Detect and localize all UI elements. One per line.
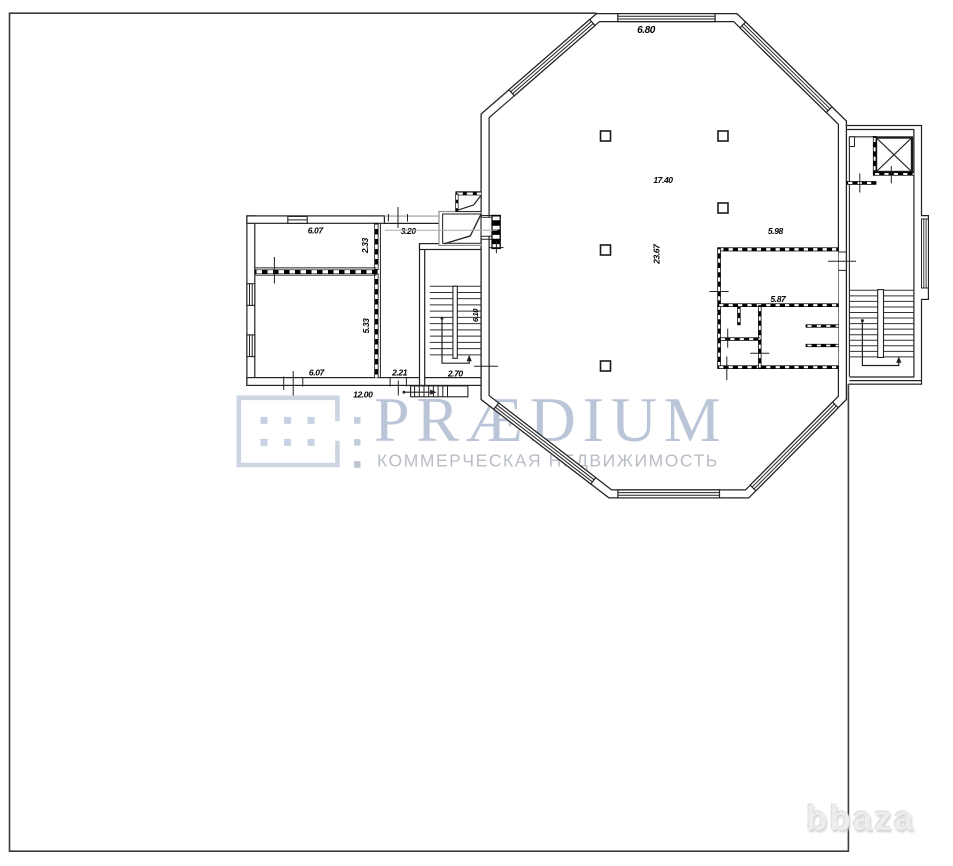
svg-text:КОММЕРЧЕСКАЯ НЕДВИЖИМОСТЬ: КОММЕРЧЕСКАЯ НЕДВИЖИМОСТЬ (377, 451, 719, 471)
svg-text:5.98: 5.98 (768, 226, 784, 236)
svg-text:17.40: 17.40 (653, 175, 673, 185)
svg-text:6.10: 6.10 (471, 308, 480, 322)
svg-text:6.07: 6.07 (309, 368, 326, 378)
svg-text:bbaza: bbaza (806, 799, 915, 838)
svg-text:5.33: 5.33 (361, 318, 371, 334)
svg-text:23.67: 23.67 (652, 243, 662, 265)
svg-text:2.33: 2.33 (360, 238, 370, 255)
svg-text:3.20: 3.20 (401, 226, 417, 236)
svg-text:6.80: 6.80 (637, 25, 656, 36)
svg-text:2.70: 2.70 (447, 369, 464, 379)
svg-text:6.07: 6.07 (308, 225, 325, 235)
svg-text:5.87: 5.87 (770, 294, 787, 304)
svg-text:2.21: 2.21 (391, 368, 408, 378)
svg-text:12.00: 12.00 (353, 390, 373, 400)
